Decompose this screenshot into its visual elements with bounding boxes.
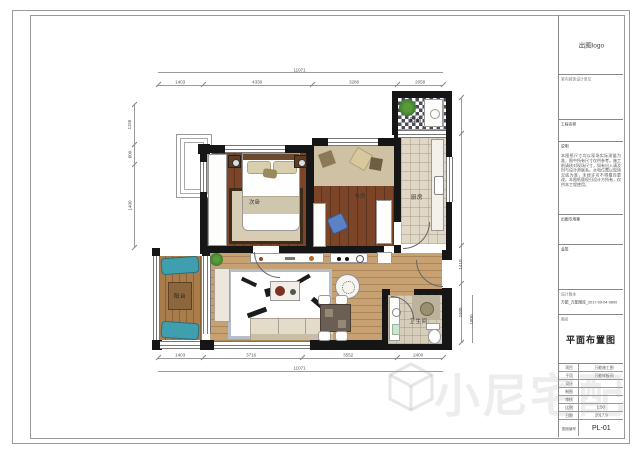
company-section: 室内装饰设计单位 xyxy=(559,75,623,120)
title-block: 出图logo 室内装饰设计单位 工程名称 说明 本图纸尺寸均以现场实际测量为准，… xyxy=(558,15,623,437)
stamp-label: 出图专用章 xyxy=(561,216,580,222)
row-label: 审核 xyxy=(559,396,579,403)
wall xyxy=(442,250,452,260)
left-balcony-label: 阳台 xyxy=(162,290,198,300)
stove-burner-icon xyxy=(337,257,341,261)
bedroom-wardrobe xyxy=(208,154,227,246)
wall xyxy=(394,245,401,253)
drawing-name: 平面布置图 xyxy=(559,329,623,349)
study-cabinet xyxy=(376,200,392,244)
wall xyxy=(207,145,225,153)
wall xyxy=(446,91,452,135)
lounge-chair xyxy=(160,321,199,341)
notes-section: 说明 本图纸尺寸均以现场实际测量为准，图中所有尺寸仅供参考。施工前请核对现场尺寸… xyxy=(559,142,623,215)
bathroom-label: 卫生间 xyxy=(398,315,438,325)
rug-pattern-mark xyxy=(241,277,257,287)
table-lamp xyxy=(232,159,240,167)
lounge-chair xyxy=(160,256,199,276)
rug-pattern-mark xyxy=(247,307,268,319)
console-decor xyxy=(285,257,295,260)
table-row: 设计 xyxy=(559,380,623,388)
table-lamp xyxy=(298,159,306,167)
wall xyxy=(200,152,207,162)
study-label: 书房 xyxy=(340,190,380,200)
bathroom-threshold xyxy=(384,344,444,350)
logo-section: 出图logo xyxy=(559,15,623,75)
bed xyxy=(242,153,300,231)
countersign-label: 会签 xyxy=(561,246,569,252)
balcony-living-slider xyxy=(203,256,211,334)
wall xyxy=(392,91,398,135)
row-label: 制图 xyxy=(559,388,579,395)
dim-tick xyxy=(441,355,447,361)
bedroom-window xyxy=(225,145,285,153)
row-value xyxy=(579,380,623,387)
company-caption: 室内装饰设计单位 xyxy=(561,76,591,82)
dim-label: 800 xyxy=(112,150,148,158)
notes-label: 说明 xyxy=(561,143,569,149)
dim-label: 1800 xyxy=(454,315,490,323)
dim-label: 2400 xyxy=(398,351,438,359)
table-row: 制图 xyxy=(559,388,623,396)
console-decor xyxy=(309,256,314,261)
countersign-section: 会签 xyxy=(559,245,623,290)
row-value: PL-01 xyxy=(579,420,623,436)
row-label: 图纸编号 xyxy=(559,420,579,436)
dim-label: 1403 xyxy=(160,78,200,86)
toilet-bowl xyxy=(428,329,441,344)
living-sliding-window xyxy=(214,341,310,349)
version-value: 万能_万能图库_2017-09-04-0800 xyxy=(561,299,622,305)
vanity-decor xyxy=(392,324,400,335)
coffee-table-decor xyxy=(290,289,296,295)
dim-tick xyxy=(459,340,465,346)
dim-tick xyxy=(441,82,447,88)
wall xyxy=(442,340,452,350)
wall xyxy=(446,202,452,255)
sink-icon xyxy=(356,255,364,263)
dim-label: 3552 xyxy=(328,351,368,359)
sofa-cushion-line xyxy=(278,319,279,334)
dining-chair xyxy=(335,331,348,341)
table-row: 比例 1:50 xyxy=(559,404,623,412)
kitchen-counter xyxy=(431,139,444,231)
kitchen-window xyxy=(446,157,453,202)
dim-label: 11071 xyxy=(270,364,330,372)
balcony-bottom-window xyxy=(160,341,200,349)
kitchen-label: 厨房 xyxy=(398,191,436,201)
sofa-cushion-line xyxy=(305,319,306,334)
coffee-table xyxy=(270,281,300,301)
row-label: 项目 xyxy=(559,364,579,371)
row-label: 比例 xyxy=(559,404,579,411)
wall xyxy=(442,288,452,344)
shower-drain-icon xyxy=(420,302,434,316)
nightstand xyxy=(294,155,307,168)
dim-label: 3280 xyxy=(334,78,374,86)
row-label: 子项 xyxy=(559,372,579,379)
table-row: 图纸编号 PL-01 xyxy=(559,420,623,436)
wall xyxy=(414,289,444,295)
bed-cushion xyxy=(262,168,277,179)
wall xyxy=(312,138,328,146)
row-value: 2017.9 xyxy=(579,412,623,419)
kitchen-door-arc xyxy=(403,222,430,249)
dining-chair xyxy=(318,331,331,341)
version-section: 设计版本 万能_万能图库_2017-09-04-0800 xyxy=(559,290,623,315)
placemat xyxy=(338,320,346,328)
drawing-name-section: 图名 平面布置图 xyxy=(559,315,623,364)
dim-label: 1156 xyxy=(112,120,148,128)
row-value: 1:50 xyxy=(579,404,623,411)
wall xyxy=(200,340,214,350)
dim-label: 1403 xyxy=(160,351,200,359)
left-balcony-window xyxy=(153,256,160,340)
dim-label: 1400 xyxy=(112,201,148,209)
wall xyxy=(310,340,386,350)
table-row: 日期 2017.9 xyxy=(559,412,623,420)
nightstand xyxy=(228,155,241,168)
placemat xyxy=(325,309,333,317)
row-value: 万能样板间 xyxy=(579,372,623,379)
wall xyxy=(279,246,312,253)
project-label: 工程名称 xyxy=(561,121,576,127)
dim-label: 11071 xyxy=(270,66,330,74)
bed-headboard xyxy=(243,154,299,160)
notes-text: 本图纸尺寸均以现场实际测量为准，图中所有尺寸仅供参考。施工前请核对现场尺寸，如有… xyxy=(561,154,621,188)
wall xyxy=(394,130,401,222)
wall xyxy=(446,135,452,157)
row-label: 设计 xyxy=(559,380,579,387)
stamp-section: 出图专用章 xyxy=(559,215,623,245)
floor-plan: 次卧 书房 厨房 阳台 阳台 xyxy=(0,0,640,452)
table-row: 项目 万能施工图 xyxy=(559,364,623,372)
dining-table xyxy=(320,304,351,332)
study-desk xyxy=(313,203,326,247)
wall xyxy=(207,246,253,253)
sofa-chaise xyxy=(214,268,230,322)
table-row: 审核 xyxy=(559,396,623,404)
dim-label: 4330 xyxy=(237,78,277,86)
dim-label: 1410 xyxy=(443,260,479,268)
version-label: 设计版本 xyxy=(561,291,576,297)
dim-label: 3716 xyxy=(231,351,271,359)
plant xyxy=(210,253,223,266)
wall xyxy=(382,289,388,344)
info-table: 项目 万能施工图 子项 万能样板间 设计 制图 审核 比例 1:50 xyxy=(559,364,623,437)
wall xyxy=(392,91,452,98)
coffee-table-decor xyxy=(275,286,285,296)
wall xyxy=(152,248,160,256)
dim-label: 2058 xyxy=(400,78,440,86)
table-row: 子项 万能样板间 xyxy=(559,372,623,380)
dim-tick xyxy=(132,245,138,251)
hanging-chair-weave xyxy=(342,281,355,294)
logo-text: 出图logo xyxy=(578,40,603,50)
drawing-name-label: 图名 xyxy=(561,316,569,322)
stove-burner-icon xyxy=(345,257,349,261)
bedroom-label: 次卧 xyxy=(235,196,275,206)
bedroom-side-window xyxy=(200,162,207,192)
wall xyxy=(200,192,207,254)
row-value xyxy=(579,388,623,395)
row-value xyxy=(579,396,623,403)
wall xyxy=(312,246,384,253)
project-section: 工程名称 xyxy=(559,120,623,142)
study-window xyxy=(328,138,378,146)
drawing-sheet: 次卧 书房 厨房 阳台 阳台 xyxy=(0,0,640,452)
row-value: 万能施工图 xyxy=(579,364,623,371)
bar-counter xyxy=(330,253,368,263)
top-balcony-label: 阳台 xyxy=(398,114,434,124)
shoe-cabinet xyxy=(377,252,392,264)
tatami-cushion xyxy=(369,157,383,171)
row-label: 日期 xyxy=(559,412,579,419)
balcony-kitchen-window xyxy=(398,130,446,138)
